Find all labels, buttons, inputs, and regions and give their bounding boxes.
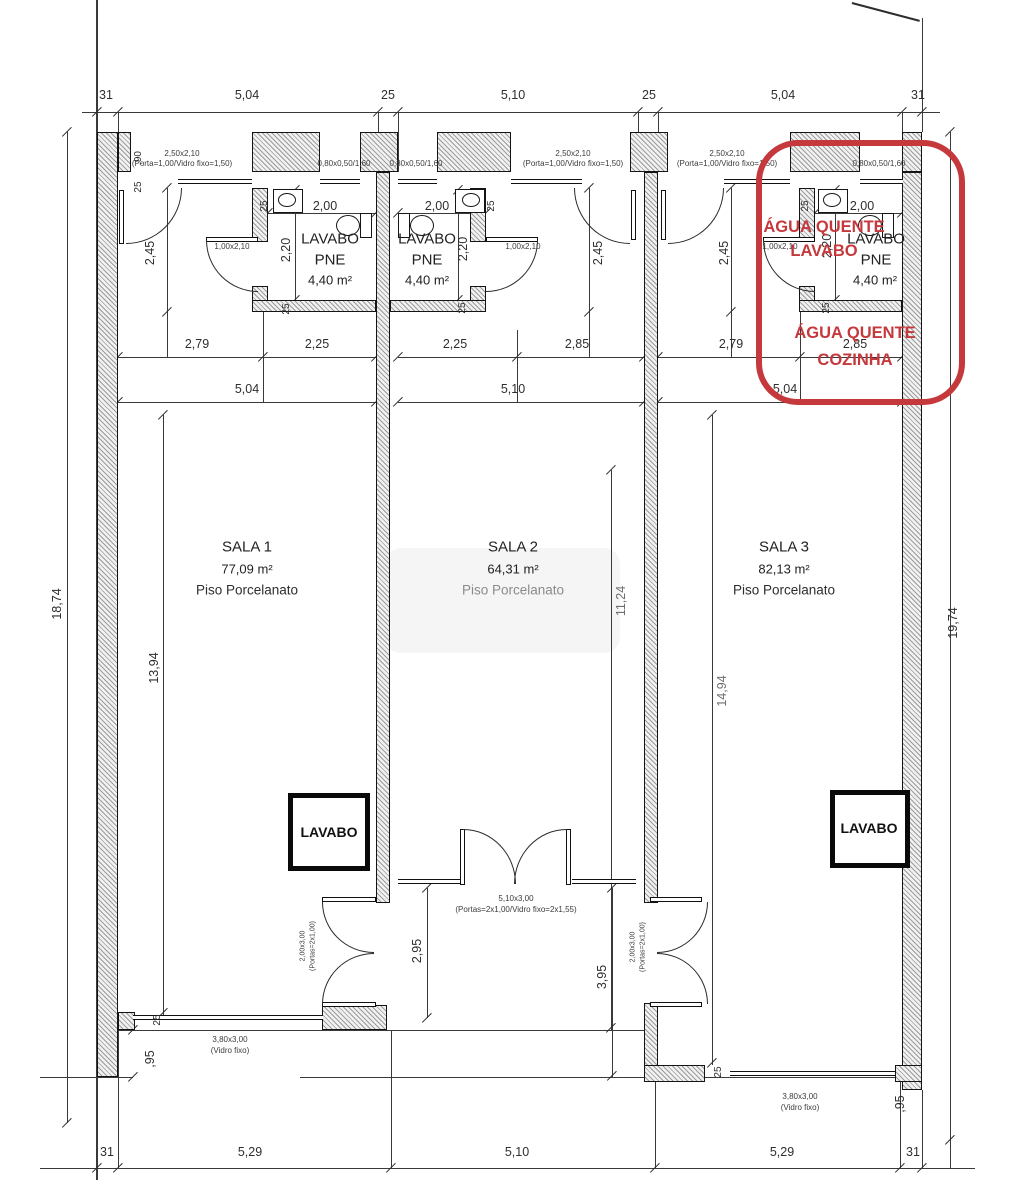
dim-line xyxy=(163,415,164,1015)
room-sala3-floor: Piso Porcelanato xyxy=(733,583,835,597)
dim-line xyxy=(67,132,68,1123)
dim-200-u2: 2,00 xyxy=(425,200,449,213)
room-sala1-floor: Piso Porcelanato xyxy=(196,583,298,597)
dim-220-u2: 2,20 xyxy=(457,237,470,261)
spec-win2: 0,80x0,50/1,60 xyxy=(390,160,443,168)
highlight-box-agua-quente xyxy=(756,140,965,405)
dim-line xyxy=(118,357,376,358)
dim-line xyxy=(712,415,713,1065)
toilet-tank-unit1 xyxy=(360,213,372,238)
wall xyxy=(322,1005,387,1030)
spec-win1: 0,80x0,50/1,60 xyxy=(318,160,371,168)
spec-reardoor1-a: 2,00x3,00 xyxy=(300,931,307,962)
spec-door2-a: 2,50x2,10 xyxy=(555,150,590,158)
dim-bot-529b: 5,29 xyxy=(770,1146,794,1159)
window-glazing xyxy=(320,179,360,184)
dim-bot-31b: 31 xyxy=(906,1146,920,1159)
dim-25-c2: 25 xyxy=(458,302,468,313)
wall xyxy=(252,132,320,172)
dim-line xyxy=(427,888,428,1018)
dim-25-tl: 25 xyxy=(134,181,144,192)
spec-frontwin3-b: (Vidro fixo) xyxy=(781,1104,820,1112)
dim-245-u2: 2,45 xyxy=(592,241,605,265)
wall xyxy=(97,132,118,1077)
room-sala2-area: 64,31 m² xyxy=(487,563,538,576)
dim-line xyxy=(922,1090,923,1168)
dim-top-25a: 25 xyxy=(381,89,395,102)
door-swing-arc xyxy=(322,953,374,1004)
spec-frontwin1-b: (Vidro fixo) xyxy=(211,1047,250,1055)
door-swing-arc xyxy=(514,829,567,884)
sink-basin-unit1 xyxy=(278,193,296,207)
spec-reardoor3-b: (Portas=2x1,00) xyxy=(640,922,647,972)
room-sala1-area: 77,09 m² xyxy=(221,563,272,576)
door-swing-arc xyxy=(657,953,708,1004)
dim-line xyxy=(398,357,644,358)
dim-top-510: 5,10 xyxy=(501,89,525,102)
dim-line xyxy=(118,1030,119,1168)
wall xyxy=(895,1065,922,1082)
window-glazing xyxy=(398,179,437,184)
dim-line xyxy=(902,112,903,132)
spec-reardoor1-b: (Portas=2x1,00) xyxy=(310,921,317,971)
dim-279-u1: 2,79 xyxy=(185,338,209,351)
dim-1124: 11,24 xyxy=(615,586,628,616)
dim-top-504a: 5,04 xyxy=(235,89,259,102)
wall xyxy=(630,132,668,172)
dim-295: 2,95 xyxy=(411,939,424,963)
dim-25-fr: 25 xyxy=(714,1066,724,1077)
lavbox2-label: LAVABO xyxy=(840,821,897,835)
dim-line xyxy=(82,112,940,113)
dim-bot-31a: 31 xyxy=(100,1146,114,1159)
room-sala3-area: 82,13 m² xyxy=(758,563,809,576)
spec-bathdoor2: 1,00x2,10 xyxy=(505,243,540,251)
spec-door3-a: 2,50x2,10 xyxy=(709,150,744,158)
dim-510-u2: 5,10 xyxy=(501,383,525,396)
spec-bathdoor1: 1,00x2,10 xyxy=(214,243,249,251)
sink-basin-unit2 xyxy=(462,193,480,207)
dim-245-u3: 2,45 xyxy=(718,241,731,265)
door-swing-arc xyxy=(322,902,374,953)
dim-200-u1: 2,00 xyxy=(313,200,337,213)
dim-25-fl: 25 xyxy=(153,1014,163,1025)
dim-395: 3,95 xyxy=(596,965,609,989)
dim-line xyxy=(391,1030,392,1168)
wall xyxy=(118,132,131,172)
room-sala3-name: SALA 3 xyxy=(759,540,809,555)
spec-centerdoor-a: 5,10x3,00 xyxy=(498,895,533,903)
door-leaf xyxy=(119,190,124,244)
room-sala1-name: SALA 1 xyxy=(222,540,272,555)
dim-504-u1: 5,04 xyxy=(235,383,259,396)
window-glazing xyxy=(178,179,252,184)
door-swing-arc xyxy=(657,902,708,953)
lavbox1-label: LAVABO xyxy=(300,825,357,839)
dim-line xyxy=(612,888,613,1078)
window-glazing xyxy=(572,879,636,884)
dim-220-u1: 2,20 xyxy=(280,238,293,262)
dim-top-31b: 31 xyxy=(911,89,925,102)
dim-line xyxy=(922,18,923,132)
dim-top-31a: 31 xyxy=(99,89,113,102)
wall xyxy=(252,300,376,312)
wall xyxy=(644,1065,705,1082)
dim-line xyxy=(300,1077,905,1078)
spec-frontwin3-a: 3,80x3,00 xyxy=(782,1093,817,1101)
floor-plan-canvas: 315,04255,10255,04312,50x2,10(Porta=1,00… xyxy=(0,0,1015,1195)
spec-reardoor3-a: 2,00x3,00 xyxy=(630,932,637,963)
spec-centerdoor-b: (Portas=2x1,00/Vidro fixo=2x1,55) xyxy=(455,906,576,914)
dim-line xyxy=(655,1082,656,1168)
door-swing-arc xyxy=(126,188,182,244)
door-swing-arc xyxy=(668,188,724,244)
dim-line xyxy=(118,112,119,132)
door-leaf xyxy=(661,190,666,240)
dim-25-b2: 25 xyxy=(487,200,497,211)
dim-95-right: ,95 xyxy=(894,1095,907,1112)
dim-bot-510: 5,10 xyxy=(505,1146,529,1159)
room-bath2-pne: PNE xyxy=(412,253,443,268)
dim-245-u1: 2,45 xyxy=(144,241,157,265)
dim-line xyxy=(731,188,732,358)
dim-1874: 18,74 xyxy=(51,588,64,619)
dim-line xyxy=(118,402,376,403)
dim-1974: 19,74 xyxy=(947,607,960,638)
window-glazing xyxy=(511,179,582,184)
room-sala2-floor: Piso Porcelanato xyxy=(462,583,564,597)
site-boundary-diagonal xyxy=(852,2,920,21)
dim-line xyxy=(398,402,644,403)
spec-door1-b: (Porta=1,00/Vidro fixo=1,50) xyxy=(132,160,232,168)
dim-line xyxy=(40,1168,975,1169)
room-bath2-area: 4,40 m² xyxy=(405,274,449,287)
room-bath1-name: LAVABO xyxy=(301,232,359,247)
dim-225-u1: 2,25 xyxy=(305,338,329,351)
room-bath1-pne: PNE xyxy=(315,253,346,268)
wall xyxy=(644,172,658,903)
dim-90: ,90 xyxy=(134,151,144,165)
spec-frontwin1-a: 3,80x3,00 xyxy=(212,1036,247,1044)
dim-279-u3: 2,79 xyxy=(719,338,743,351)
spec-door2-b: (Porta=1,00/Vidro fixo=1,50) xyxy=(523,160,623,168)
dim-285-u2: 2,85 xyxy=(565,338,589,351)
dim-bot-529a: 5,29 xyxy=(238,1146,262,1159)
dim-25-b1: 25 xyxy=(260,200,270,211)
room-sala2-name: SALA 2 xyxy=(488,540,538,555)
wall xyxy=(376,172,390,903)
dim-line xyxy=(118,1030,655,1031)
spec-door1-a: 2,50x2,10 xyxy=(164,150,199,158)
window-glazing xyxy=(398,879,462,884)
door-swing-arc xyxy=(574,188,630,244)
wall xyxy=(437,132,511,172)
wall xyxy=(390,300,486,312)
dim-top-504b: 5,04 xyxy=(771,89,795,102)
room-bath1-area: 4,40 m² xyxy=(308,274,352,287)
dim-line xyxy=(40,1077,133,1078)
window-glazing xyxy=(730,1071,895,1076)
room-bath2-name: LAVABO xyxy=(398,232,456,247)
dim-1494: 14,94 xyxy=(716,675,729,706)
dim-225-u2: 2,25 xyxy=(443,338,467,351)
wall xyxy=(252,188,268,242)
door-swing-arc xyxy=(463,829,516,884)
door-leaf xyxy=(631,190,636,240)
dim-top-25b: 25 xyxy=(642,89,656,102)
dim-25-c1: 25 xyxy=(282,303,292,314)
dim-95-left: ,95 xyxy=(144,1050,157,1067)
dim-1394: 13,94 xyxy=(148,652,161,683)
